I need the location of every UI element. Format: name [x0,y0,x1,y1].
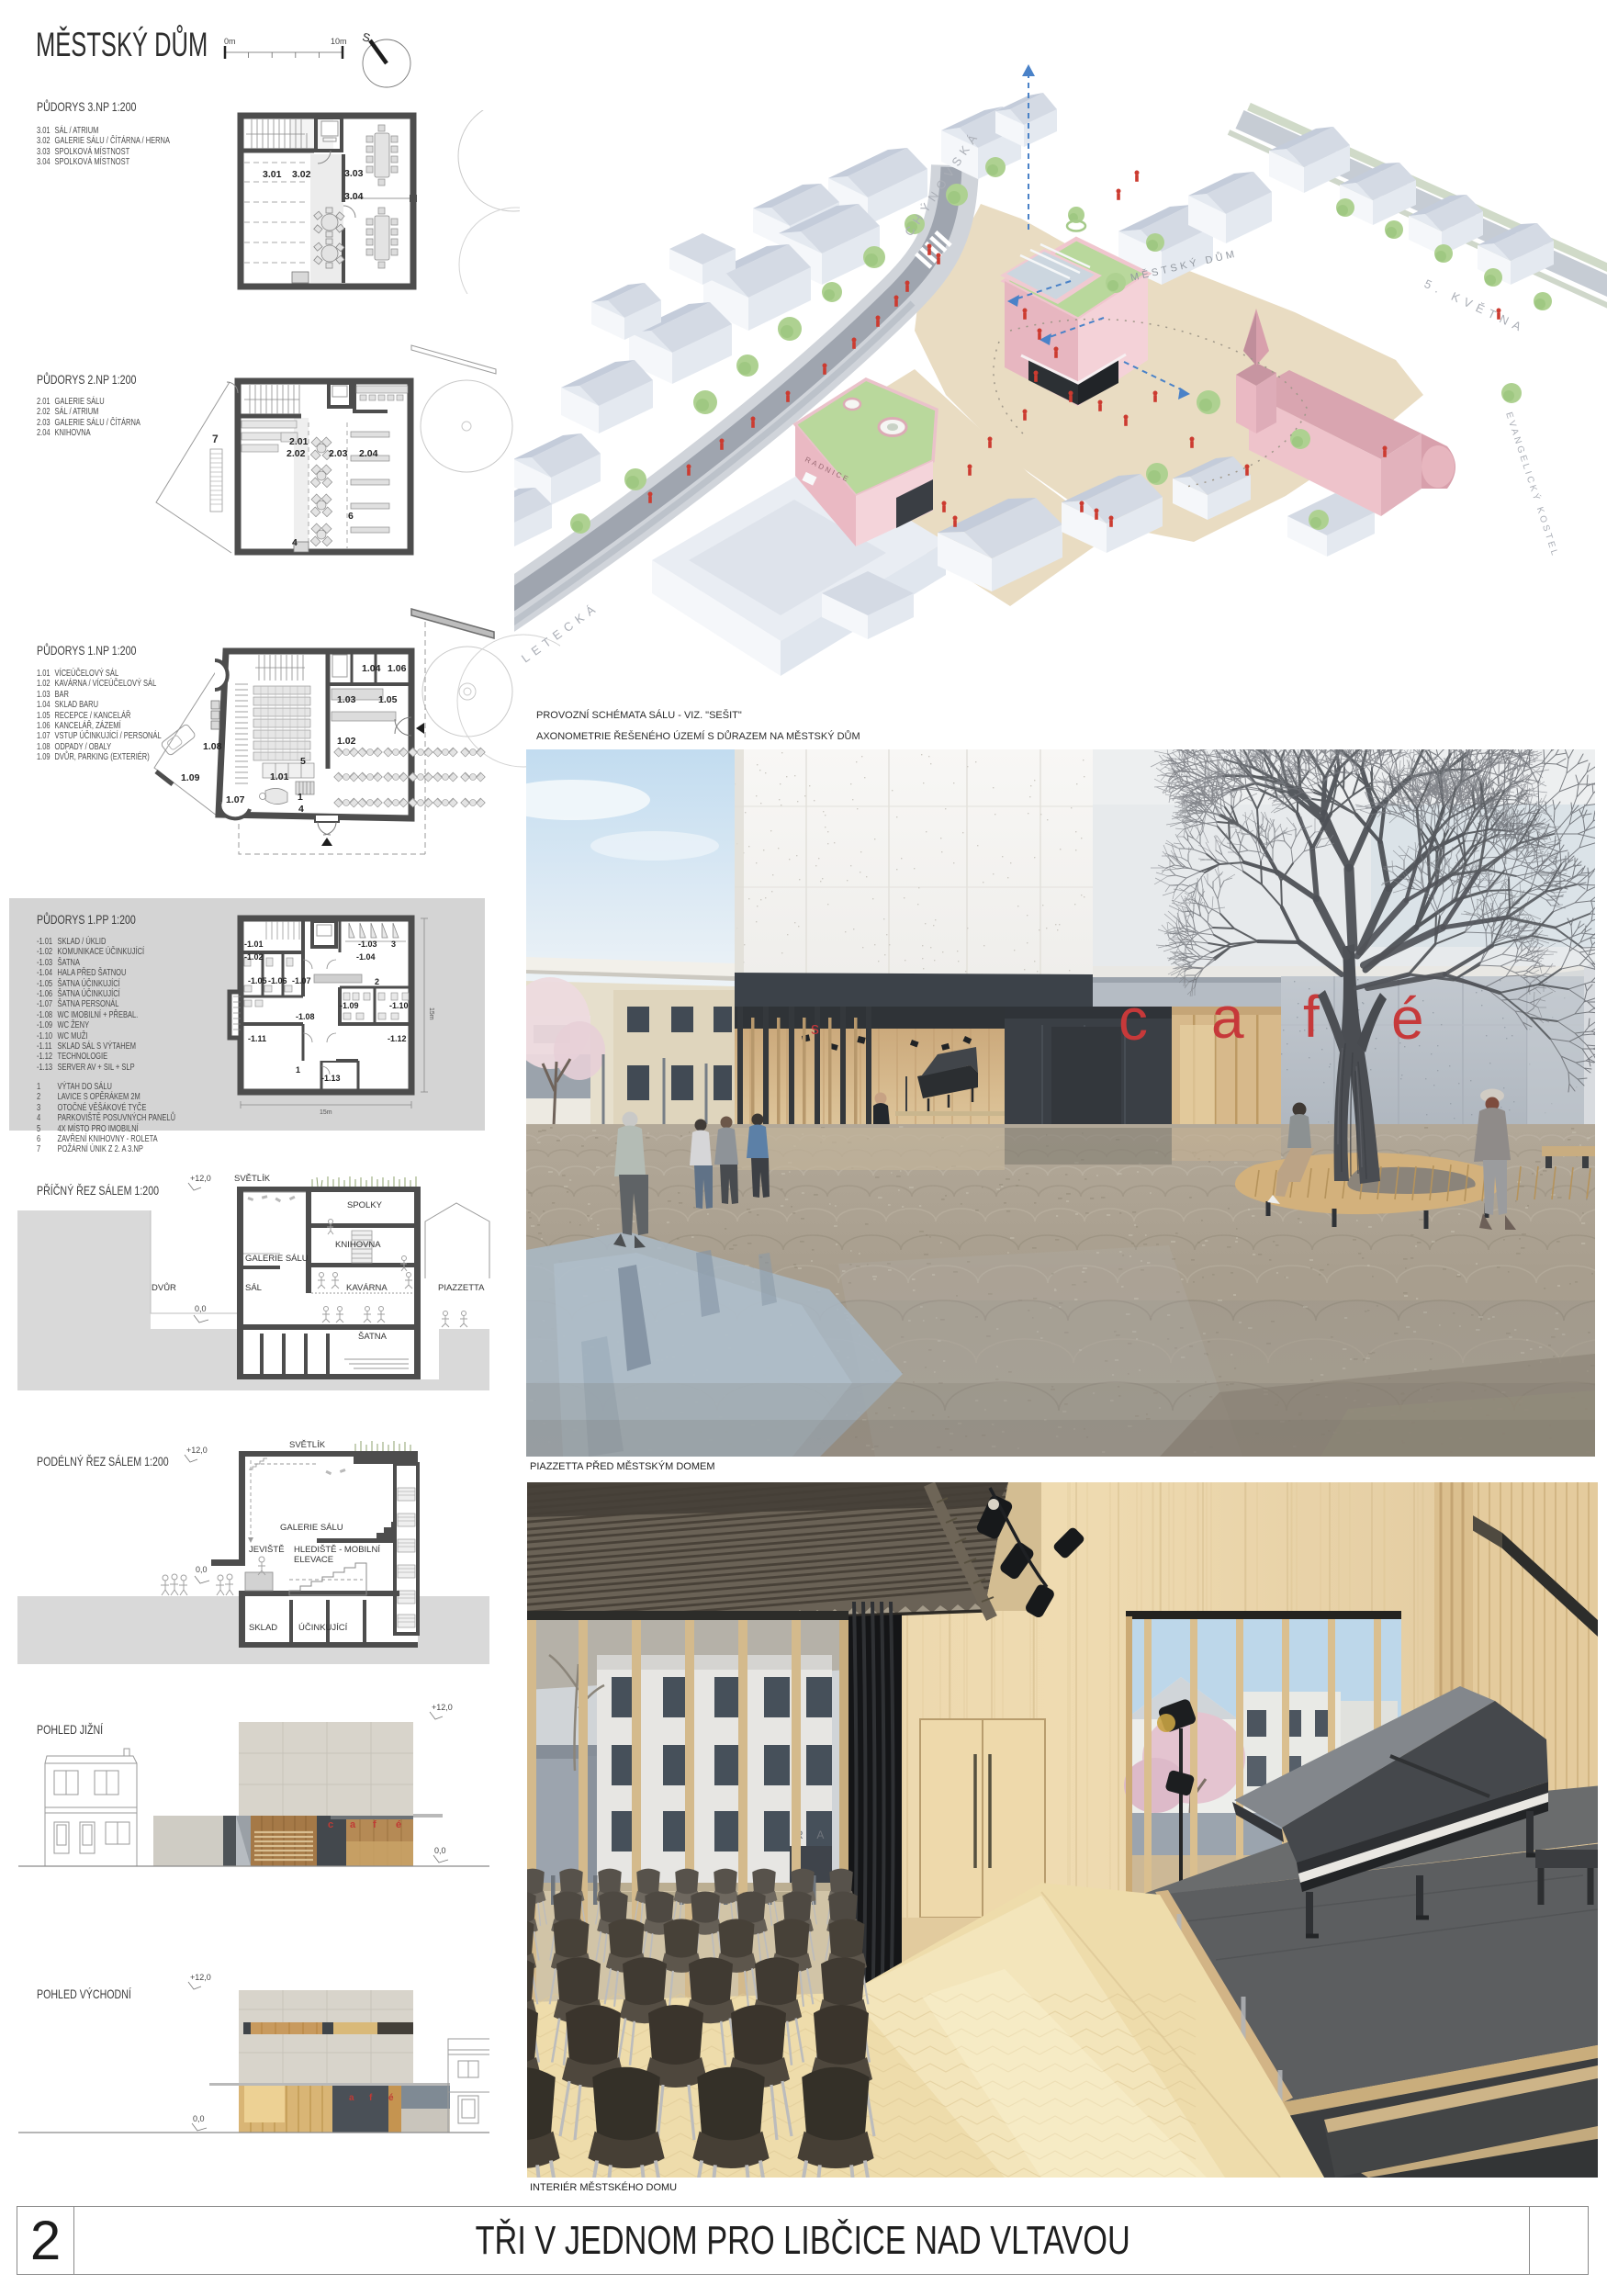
svg-text:6: 6 [348,511,354,522]
svg-text:a: a [1211,985,1244,1051]
svg-text:+12,0: +12,0 [186,1446,208,1455]
svg-text:-1.02: -1.02 [244,952,264,962]
svg-text:15m: 15m [320,1109,332,1116]
svg-text:0m: 0m [224,37,236,46]
svg-text:GALERIE SÁLU: GALERIE SÁLU [245,1254,309,1264]
svg-text:f: f [373,1819,376,1830]
svg-text:-1.10: -1.10 [389,1001,409,1010]
svg-text:0,0: 0,0 [196,1565,208,1574]
svg-text:c: c [1118,986,1148,1052]
svg-text:-1.08: -1.08 [296,1012,315,1021]
svg-text:+12,0: +12,0 [190,1174,211,1183]
svg-text:2.01: 2.01 [289,436,309,447]
svg-text:-1.11: -1.11 [248,1034,266,1043]
svg-text:0,0: 0,0 [195,1304,207,1313]
svg-text:-1.04: -1.04 [356,952,376,962]
svg-text:2: 2 [375,977,379,986]
svg-text:DVŮR: DVŮR [152,1282,176,1293]
svg-text:é: é [1391,985,1424,1052]
svg-text:1.01: 1.01 [270,771,289,782]
svg-text:KNIHOVNA: KNIHOVNA [335,1240,381,1250]
svg-text:3: 3 [391,940,396,949]
svg-text:1.05: 1.05 [378,694,398,705]
svg-text:ÚČINKUJÍCÍ: ÚČINKUJÍCÍ [298,1623,348,1633]
svg-text:3.03: 3.03 [344,168,364,179]
svg-text:1.08: 1.08 [203,741,222,752]
svg-text:1.04: 1.04 [362,663,381,674]
svg-text:-1.03: -1.03 [358,940,377,949]
svg-text:1.02: 1.02 [337,736,356,747]
svg-text:+12,0: +12,0 [190,1973,211,1982]
svg-text:1.03: 1.03 [337,694,356,705]
svg-text:EVANGELICKÝ KOSTEL: EVANGELICKÝ KOSTEL [1503,411,1562,559]
svg-text:15m: 15m [428,1007,434,1020]
svg-text:SÁL: SÁL [245,1283,262,1293]
svg-text:1.06: 1.06 [388,663,407,674]
svg-text:-1.12: -1.12 [388,1034,407,1043]
svg-text:-1.05: -1.05 [248,976,267,985]
svg-text:c: c [328,1819,333,1830]
svg-text:s: s [811,1019,819,1038]
svg-text:0,0: 0,0 [193,2114,205,2123]
svg-text:GALERIE SÁLU: GALERIE SÁLU [280,1523,343,1533]
svg-text:-1.13: -1.13 [321,1074,341,1083]
svg-text:+12,0: +12,0 [432,1703,453,1712]
svg-text:7: 7 [212,433,219,445]
svg-text:0,0: 0,0 [434,1846,446,1855]
svg-text:1: 1 [296,1065,300,1075]
svg-text:SKLAD: SKLAD [249,1623,277,1633]
svg-text:5: 5 [300,756,306,767]
svg-text:1.09: 1.09 [181,772,200,783]
svg-text:-1.09: -1.09 [340,1001,359,1010]
svg-text:3.02: 3.02 [292,169,311,180]
svg-text:2.02: 2.02 [287,448,306,459]
svg-text:SVĚTLÍK: SVĚTLÍK [289,1440,326,1450]
svg-text:SPOLKY: SPOLKY [347,1200,383,1210]
svg-text:SVĚTLÍK: SVĚTLÍK [234,1174,271,1184]
svg-text:é: é [396,1819,401,1830]
svg-text:3.04: 3.04 [344,191,364,202]
svg-text:4: 4 [298,804,304,815]
svg-text:ELEVACE: ELEVACE [294,1555,333,1565]
svg-text:3.01: 3.01 [263,169,282,180]
svg-text:1: 1 [298,792,303,803]
svg-text:a: a [350,1819,356,1830]
svg-text:ŠATNA: ŠATNA [358,1332,388,1342]
svg-text:KAVÁRNA: KAVÁRNA [346,1283,388,1293]
svg-text:1.07: 1.07 [226,794,245,805]
svg-text:-1.01: -1.01 [244,940,264,949]
svg-text:2.04: 2.04 [359,448,378,459]
svg-text:5. KVĚTNA: 5. KVĚTNA [1422,276,1529,336]
svg-text:4: 4 [292,537,298,548]
svg-text:HLEDIŠTĚ - MOBILNÍ: HLEDIŠTĚ - MOBILNÍ [294,1545,380,1555]
svg-text:é: é [388,2093,394,2103]
svg-text:a: a [349,2093,354,2103]
svg-text:f: f [1303,984,1320,1050]
svg-text:10m: 10m [331,37,347,46]
svg-text:PIAZZETTA: PIAZZETTA [438,1283,485,1293]
svg-text:JEVIŠTĚ: JEVIŠTĚ [249,1545,285,1555]
svg-text:-1.06: -1.06 [268,976,287,985]
svg-text:2.03: 2.03 [329,448,348,459]
svg-text:-1.07: -1.07 [292,976,311,985]
